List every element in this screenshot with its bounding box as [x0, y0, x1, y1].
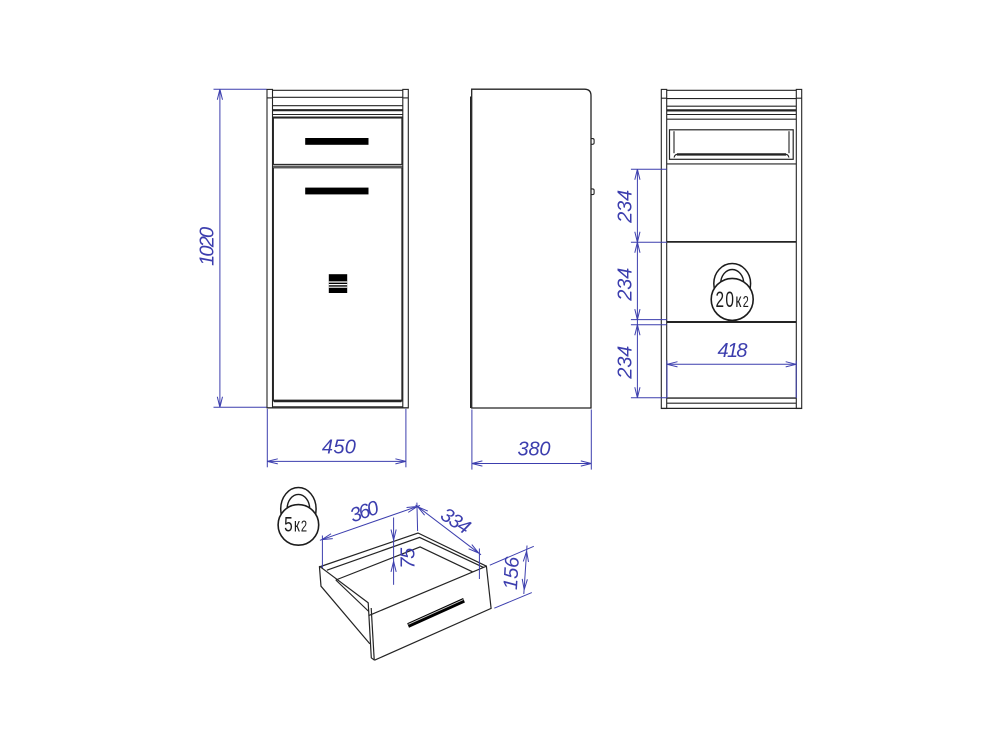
svg-text:20к2: 20к2 [715, 288, 750, 312]
svg-text:450: 450 [322, 437, 356, 459]
svg-text:1020: 1020 [197, 227, 219, 266]
svg-text:75: 75 [397, 547, 419, 569]
svg-text:156: 156 [500, 555, 524, 590]
svg-text:234: 234 [614, 346, 636, 380]
svg-text:234: 234 [614, 268, 636, 302]
svg-text:234: 234 [614, 190, 636, 224]
svg-text:418: 418 [718, 340, 748, 362]
svg-text:380: 380 [518, 439, 551, 461]
